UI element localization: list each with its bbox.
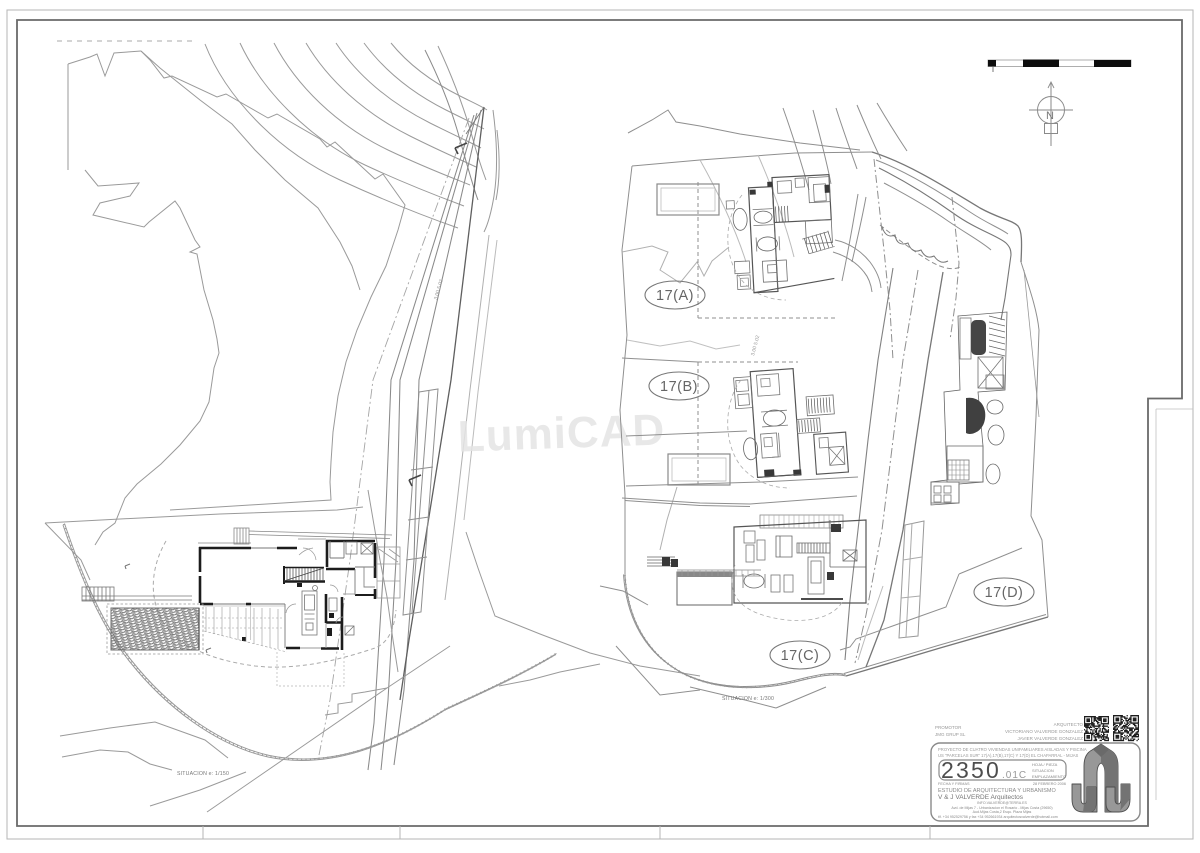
svg-text:tlf. +34 952529756 y fax +34: tlf. +34 952529756 y fax +34 952661934 a… bbox=[938, 815, 1058, 819]
svg-text:JAVIER VALVERDE GONZALEZ: JAVIER VALVERDE GONZALEZ bbox=[1017, 736, 1083, 741]
svg-text:SITUACION: SITUACION bbox=[1032, 768, 1054, 773]
svg-text:17(D): 17(D) bbox=[985, 585, 1024, 601]
svg-text:VICTORIANO VALVERDE GONZALEZ: VICTORIANO VALVERDE GONZALEZ bbox=[1005, 729, 1083, 734]
svg-text:17(C): 17(C) bbox=[781, 648, 820, 664]
svg-text:ARQUITECTO: ARQUITECTO bbox=[1054, 722, 1084, 727]
svg-text:EMPLAZAMIENTO: EMPLAZAMIENTO bbox=[1032, 774, 1066, 779]
svg-text:JMG GRUP SL: JMG GRUP SL bbox=[935, 732, 966, 737]
svg-text:SITUACION e: 1/300: SITUACION e: 1/300 bbox=[722, 696, 774, 702]
svg-text:.01C: .01C bbox=[1002, 770, 1027, 781]
svg-text:HOJA / PIEZA: HOJA / PIEZA bbox=[1032, 762, 1058, 767]
svg-text:Aud.Mijas Costa,2 Esqu. Plaza: Aud.Mijas Costa,2 Esqu. Plaza Mijas bbox=[973, 810, 1032, 814]
svg-text:PROMOTOR: PROMOTOR bbox=[935, 725, 962, 730]
svg-text:N: N bbox=[1046, 110, 1054, 122]
svg-text:LumiCAD: LumiCAD bbox=[457, 405, 666, 461]
svg-text:PROYECTO DE CUATRO VIVIENDAS U: PROYECTO DE CUATRO VIVIENDAS UNIFAMILIAR… bbox=[938, 747, 1087, 752]
svg-text:17(A): 17(A) bbox=[656, 288, 694, 304]
svg-text:2350: 2350 bbox=[941, 757, 1001, 783]
svg-text:17(B): 17(B) bbox=[660, 379, 698, 395]
svg-text:28 FEBRERO 2006: 28 FEBRERO 2006 bbox=[1033, 782, 1066, 786]
svg-text:INFO.VALVERDE@TERRA.ES: INFO.VALVERDE@TERRA.ES bbox=[977, 801, 1027, 805]
svg-text:FECHA Y FIRMAS: FECHA Y FIRMAS bbox=[938, 782, 970, 786]
svg-text:V & J VALVERDE Arquitectos: V & J VALVERDE Arquitectos bbox=[938, 794, 1024, 801]
svg-text:SITUACION e: 1/150: SITUACION e: 1/150 bbox=[177, 771, 229, 777]
